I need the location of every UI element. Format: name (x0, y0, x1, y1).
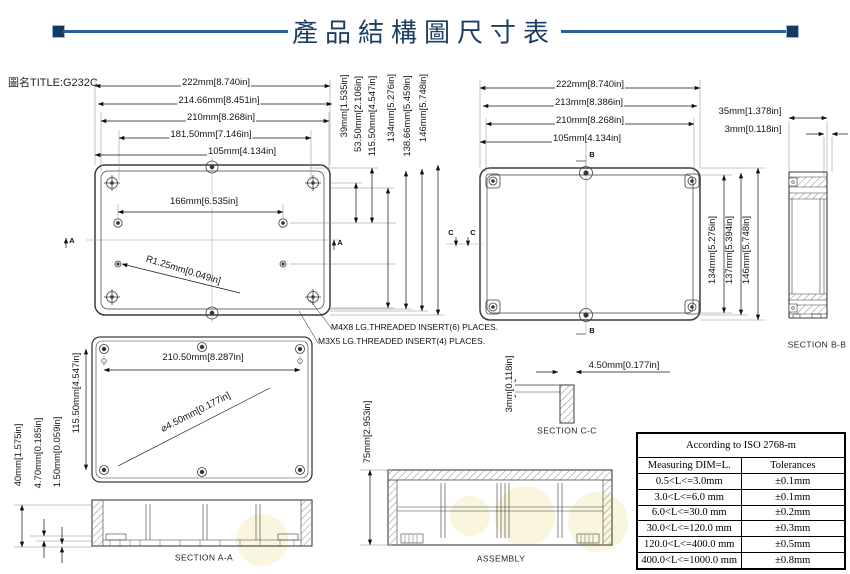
view-bottom-drawing (86, 157, 341, 323)
drawing-sheet: 產品結構圖尺寸表 圖名TITLE:G232C (0, 0, 850, 574)
tolerance-range: 120.0<L<=400.0 mm (637, 537, 741, 553)
tolerance-value: ±0.1mm (741, 474, 845, 490)
tolerance-table-title: According to ISO 2768-m (637, 433, 845, 458)
section-cc-label: SECTION C-C (536, 426, 598, 435)
tolerance-range: 3.0<L<=6.0 mm (637, 489, 741, 505)
tolerance-table: According to ISO 2768-m Measuring DIM=L.… (636, 432, 846, 570)
dim-label: 1.50mm[0.059in] (53, 416, 63, 489)
tolerance-value: ±0.3mm (741, 521, 845, 537)
tolerance-range: 6.0<L<=30.0 mm (637, 505, 741, 521)
section-a-marker: A (336, 239, 343, 247)
threaded-insert-note: M4X8 LG.THREADED INSERT(6) PLACES. (330, 323, 499, 332)
dim-label: 222mm[8.740in] (555, 80, 625, 90)
tolerance-value: ±0.8mm (741, 552, 845, 569)
dim-label: 213mm[8.386in] (554, 98, 624, 108)
dim-label: 4.70mm[0.185in] (34, 417, 44, 490)
dim-label: 4.50mm[0.177in] (588, 361, 661, 371)
section-c-marker: C (447, 229, 454, 237)
dim-label: 137mm[5.394in] (725, 215, 735, 285)
dim-label: 115.50mm[4.547in] (368, 75, 378, 158)
tolerance-col-header: Tolerances (741, 458, 845, 474)
tolerance-range: 400.0<L<=1000.0 mm (637, 552, 741, 569)
section-bb-label: SECTION B-B (787, 340, 848, 349)
watermark (236, 486, 628, 566)
tolerance-col-header: Measuring DIM=L. (637, 458, 741, 474)
tolerance-range: 30.0<L<=120.0 mm (637, 521, 741, 537)
section-cc-drawing (508, 385, 574, 423)
dim-label: 115.50mm[4.547in] (72, 352, 82, 435)
view-bottom-dims (66, 86, 438, 343)
section-c-marker: C (469, 229, 476, 237)
dim-label: 181.50mm[7.146in] (169, 130, 252, 140)
tolerance-range: 0.5<L<=3.0mm (637, 474, 741, 490)
tolerance-value: ±0.1mm (741, 489, 845, 505)
dim-label: 146mm[5.748in] (742, 215, 752, 285)
dim-label: 138.66mm[5.459in] (403, 74, 413, 157)
threaded-insert-note: M3X5 LG.THREADED INSERT(4) PLACES. (317, 337, 486, 346)
section-bb-drawing (789, 172, 827, 318)
section-aa-dims (14, 505, 92, 563)
assembly-label: ASSEMBLY (476, 554, 526, 563)
view-top-drawing (446, 155, 700, 333)
section-b-marker: B (588, 327, 595, 335)
dim-label: 166mm[6.535in] (169, 197, 239, 207)
dim-label: 75mm[2.953in] (363, 400, 373, 465)
dim-label: 222mm[8.740in] (181, 78, 251, 88)
dim-label: 40mm[1.575in] (14, 423, 24, 488)
dim-label: 214.66mm[8.451in] (177, 96, 260, 106)
tolerance-value: ±0.2mm (741, 505, 845, 521)
dim-label: 146mm[5.748in] (419, 73, 429, 143)
dim-label: 210mm[8.268in] (555, 116, 625, 126)
section-b-marker: B (588, 151, 595, 159)
dim-label: 3mm[0.118in] (724, 125, 783, 135)
dim-label: 105mm[4.134in] (552, 134, 622, 144)
dim-label: 105mm[4.134in] (207, 147, 277, 157)
section-cc-dims (514, 368, 670, 411)
dim-label: 210mm[8.268in] (186, 113, 256, 123)
dim-label: 134mm[5.276in] (708, 215, 718, 285)
tolerance-value: ±0.5mm (741, 537, 845, 553)
dim-label: 35mm[1.378in] (718, 107, 783, 117)
assembly-dims (360, 470, 392, 545)
section-aa-label: SECTION A-A (174, 553, 234, 562)
section-a-marker: A (68, 237, 75, 245)
dim-label: 39mm[1.535in] (340, 74, 350, 139)
dim-label: 210.50mm[8.287in] (161, 353, 244, 363)
dim-label: 3mm[0.118in] (505, 355, 515, 414)
dim-label: 53.50mm[2.106in] (354, 75, 364, 153)
dim-label: 134mm[5.276in] (387, 73, 397, 143)
